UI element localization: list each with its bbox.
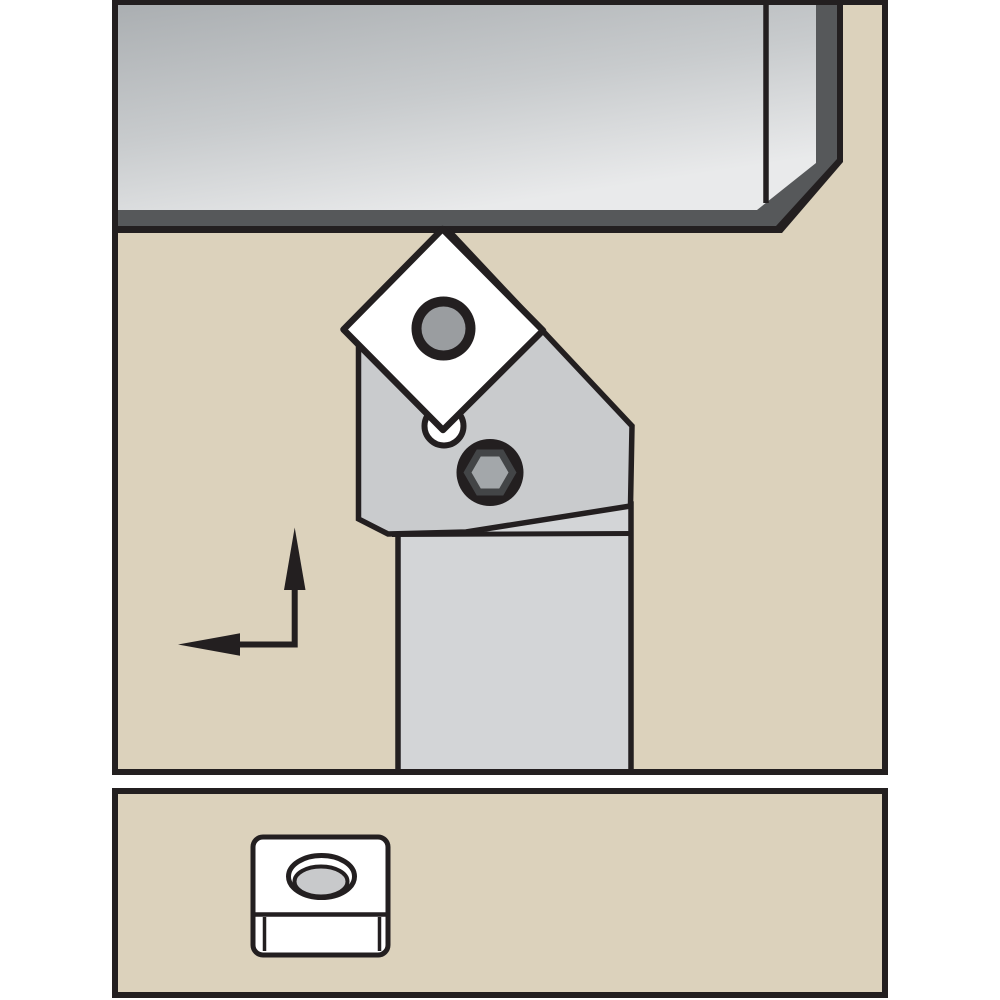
insert-hole	[422, 307, 466, 351]
detail-panel-background	[115, 791, 885, 995]
main-panel	[112, 0, 885, 772]
workpiece-face	[112, 0, 816, 210]
tool-holder-illustration	[0, 0, 1000, 1000]
tool-shank	[398, 505, 631, 773]
detail-insert	[253, 837, 388, 955]
detail-panel	[115, 791, 885, 995]
shank-top-edge-line	[392, 534, 631, 535]
clamp-screw	[457, 439, 524, 506]
countersunk-hole	[295, 867, 348, 897]
illustration-page	[0, 0, 1000, 1000]
workpiece-bar	[112, 0, 843, 233]
